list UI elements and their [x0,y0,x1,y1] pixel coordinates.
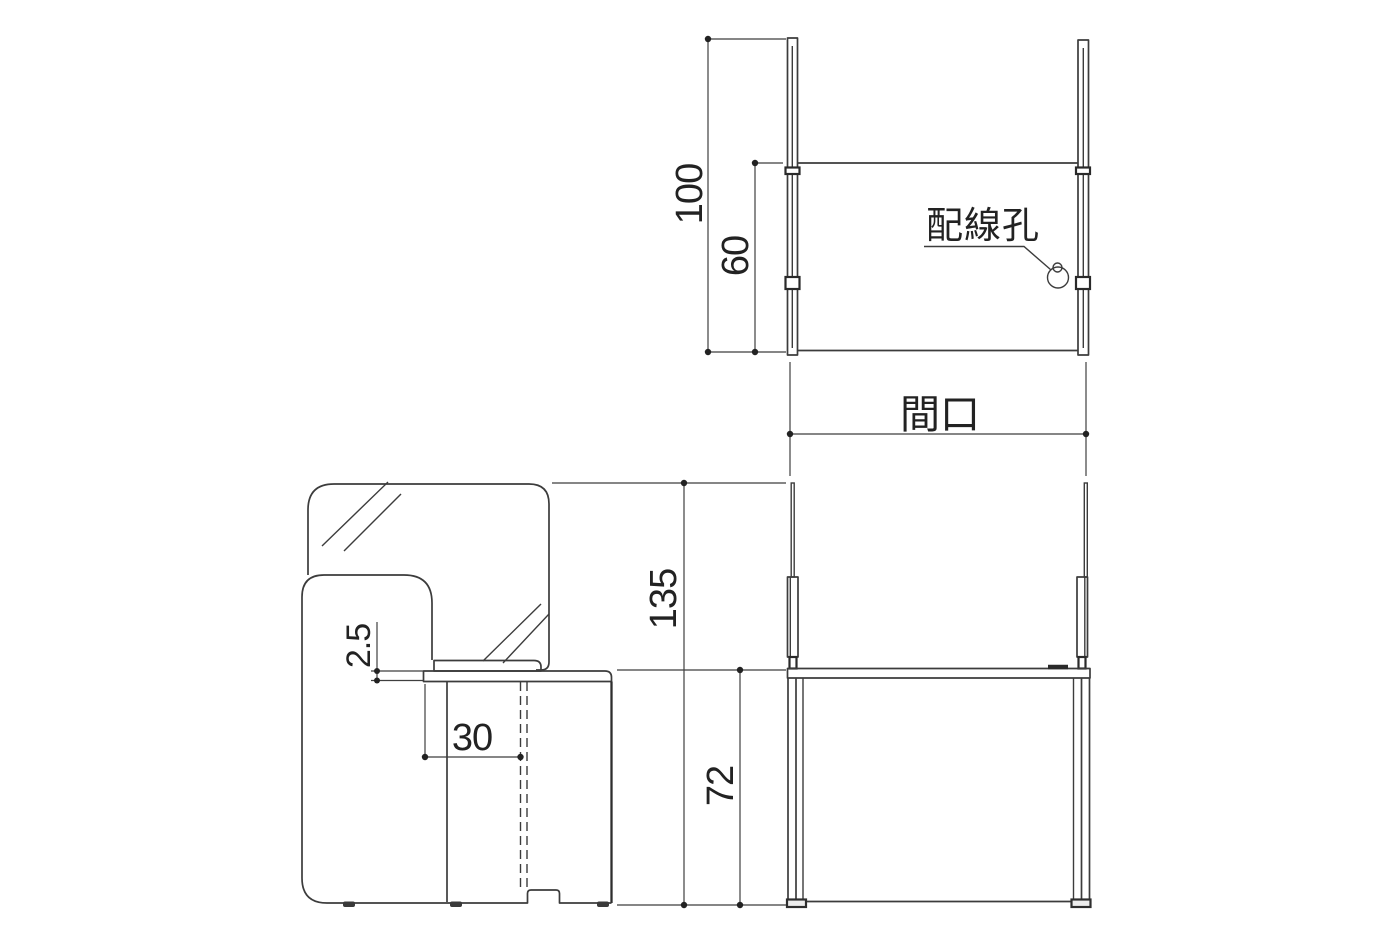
screen-base-plate [434,661,541,672]
frontage-dimension: 間口 [787,362,1089,476]
desk-bottom-with-notch [327,890,612,903]
left-screen-edge [791,483,794,577]
side-foot-3 [597,902,609,908]
dim-text-135: 135 [643,569,685,629]
dim-text-72: 72 [700,766,742,806]
dim-text-30: 30 [452,717,492,759]
left-post-bracket [790,657,797,669]
dim-text-100: 100 [669,164,711,224]
desktop-side [424,671,612,682]
desktop-front [788,669,1091,679]
dim-panel-length-100: 100 [669,36,786,355]
right-panel-bracket-upper [1076,168,1090,175]
top-view: 配線孔 100 60 [669,36,1090,355]
side-foot-2 [450,902,462,908]
left-panel-bracket-upper [786,168,800,175]
dim-overall-height-135: 135 [643,480,687,908]
dim-text-60: 60 [715,236,757,276]
front-view [787,483,1091,907]
right-post-bracket [1079,657,1086,669]
drawing-canvas: 配線孔 100 60 間口 [0,0,1400,933]
dim-desktop-thickness-2_5: 2.5 [340,622,423,684]
frontage-label: 間口 [900,393,980,437]
right-leg [1074,678,1090,900]
wiring-hole-leader-line [924,247,1051,270]
left-post [788,577,799,657]
technical-drawing: 配線孔 100 60 間口 [0,0,1400,933]
side-foot-1 [343,902,355,908]
right-post [1077,577,1088,657]
dim-text-2_5: 2.5 [340,624,378,668]
right-screen-edge [1084,483,1087,577]
left-leg [788,678,803,900]
dim-desktop-height-72: 72 [700,667,743,908]
side-view: 2.5 30 [302,482,612,907]
front-right-foot [1072,900,1091,908]
front-left-foot [787,900,806,908]
left-panel-bracket-lower [786,277,800,289]
height-dimensions: 135 72 [552,480,786,908]
wiring-hole-label: 配線孔 [926,205,1040,246]
dim-wiring-offset-30: 30 [422,684,524,760]
dim-desk-depth-60: 60 [715,160,783,355]
right-panel-bracket-lower [1076,277,1090,289]
wiring-hole-icon [1048,263,1069,288]
